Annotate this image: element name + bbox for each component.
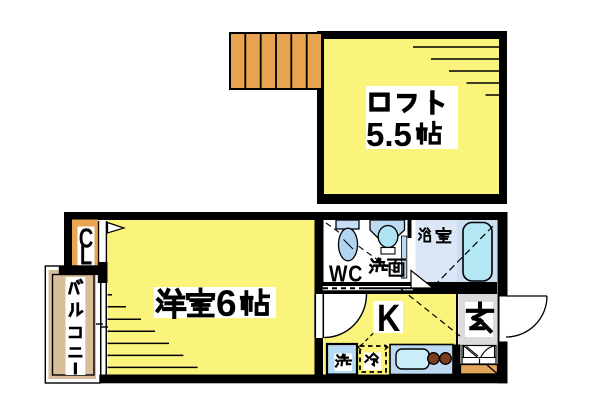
svg-text:WC: WC (329, 261, 363, 287)
svg-text:K: K (377, 298, 401, 340)
svg-text:6: 6 (216, 283, 237, 324)
svg-text:5.5: 5.5 (366, 116, 412, 153)
